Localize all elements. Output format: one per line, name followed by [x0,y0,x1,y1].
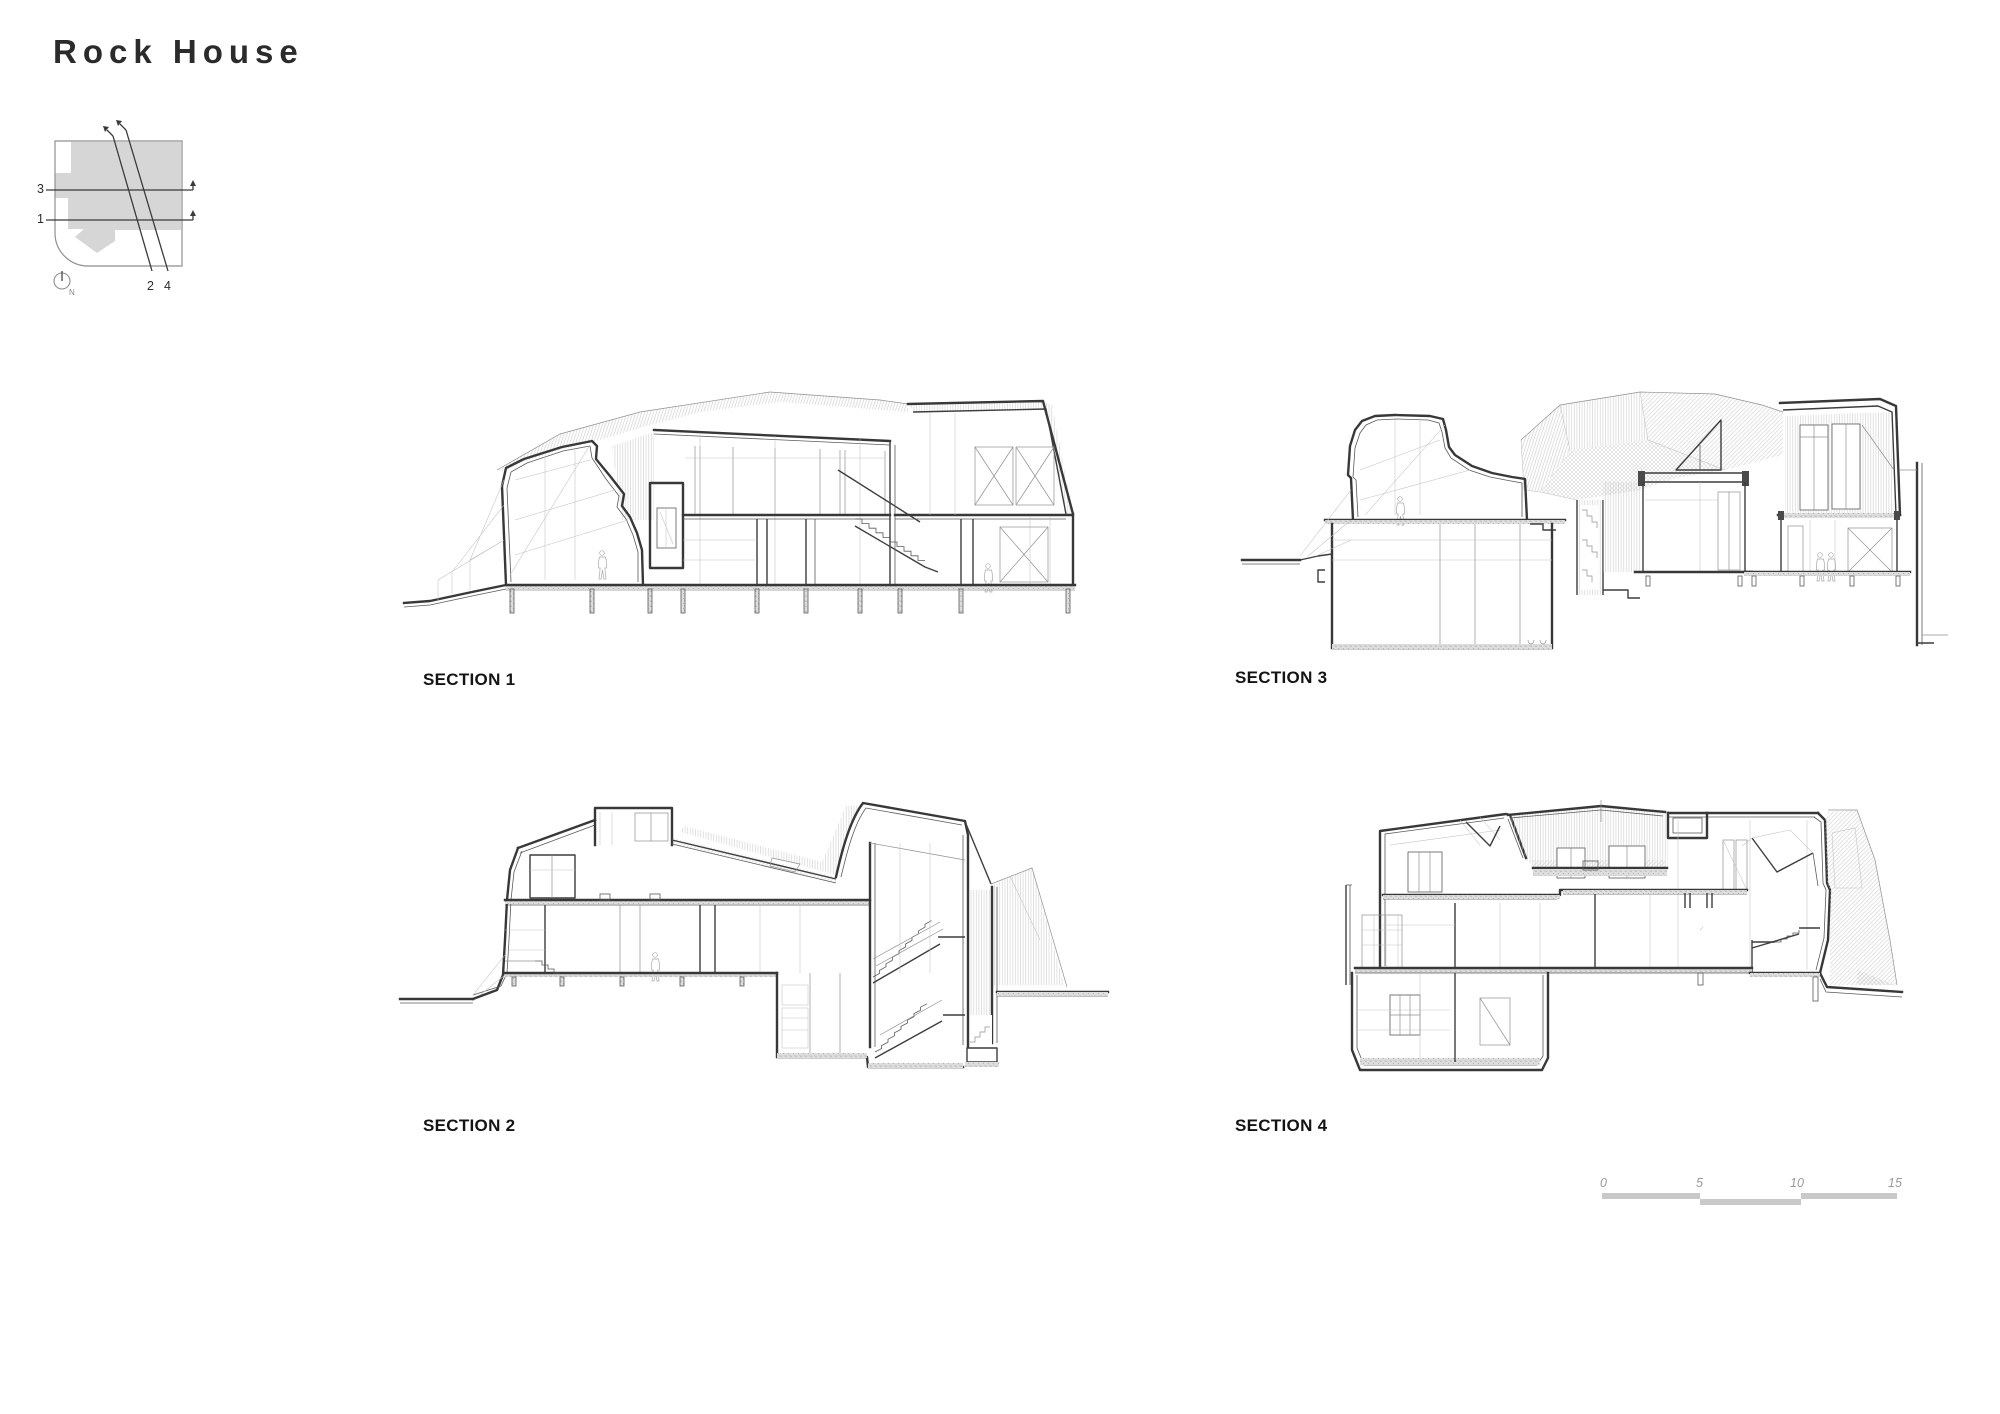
scale-tick-5: 5 [1696,1176,1703,1190]
s4-center-roof [1508,800,1668,878]
key-plan-label-1: 1 [28,212,44,226]
scale-segment-3 [1801,1193,1897,1199]
section-1-label: SECTION 1 [423,670,515,690]
s3-retaining-wall [1900,463,1948,645]
scale-segment-2 [1700,1199,1801,1205]
section-4-label: SECTION 4 [1235,1116,1327,1136]
scale-tick-15: 15 [1888,1176,1902,1190]
drawing-sheet: Rock House 3 1 2 4 N SECTION 1 SECTION 3… [0,0,2000,1414]
s4-basement [1352,973,1548,1070]
key-plan [46,120,196,289]
section-1-drawing [404,392,1075,613]
section-3-drawing [1242,392,1948,649]
north-arrow-icon [54,271,70,289]
s2-tower [836,803,991,1058]
s1-right-volume [890,413,1073,592]
s1-stair-shaft [650,483,683,568]
s3-middle-volume [1603,471,1752,586]
key-plan-label-2: 2 [147,279,154,293]
s4-left-volume [1346,814,1526,985]
scale-segment-1 [1602,1193,1700,1199]
scale-tick-0: 0 [1600,1176,1607,1190]
north-label: N [69,288,75,297]
s4-rock [1820,810,1902,997]
s1-middle-volume [683,433,938,585]
scale-bar [1602,1193,1897,1205]
key-plan-label-4: 4 [164,279,171,293]
scale-tick-10: 10 [1790,1176,1804,1190]
section-3-label: SECTION 3 [1235,668,1327,688]
page-title: Rock House [53,33,304,71]
s2-rock [965,868,1108,1067]
key-plan-label-3: 3 [28,182,44,196]
s2-left-floors [400,894,870,1003]
section-2-label: SECTION 2 [423,1116,515,1136]
sheet-graphics [0,0,2000,1414]
section-2-drawing [400,803,1108,1068]
key-plan-footprint [55,142,181,253]
section-4-drawing [1346,800,1902,1070]
